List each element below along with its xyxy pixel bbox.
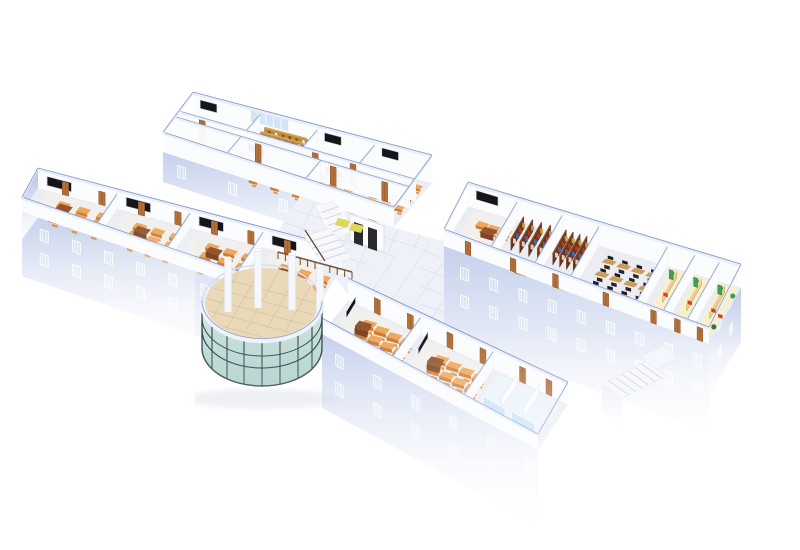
elevator-door — [368, 227, 377, 251]
fog-fade-bottom — [0, 335, 800, 550]
atrium-lobby-floor — [205, 268, 319, 338]
school-building-3d-render — [0, 0, 800, 550]
render-canvas — [0, 0, 800, 550]
